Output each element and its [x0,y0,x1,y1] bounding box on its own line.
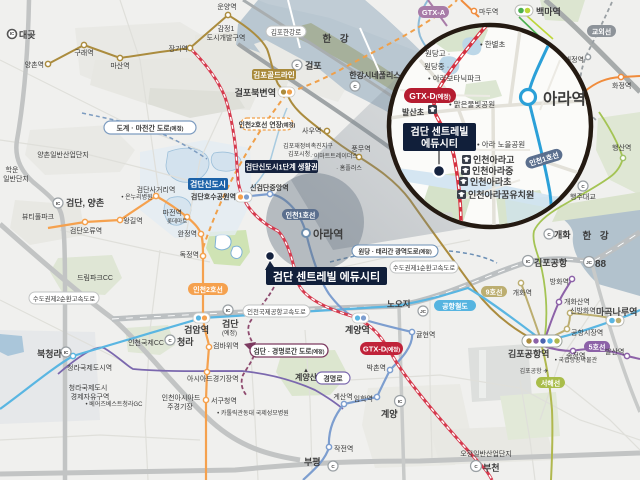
svg-text:IC: IC [526,259,531,264]
svg-text:대곶: 대곶 [19,29,36,40]
svg-text:검단호수공원역: 검단호수공원역 [191,192,236,201]
svg-text:(예정): (예정) [222,329,237,337]
svg-text:• 한별초: • 한별초 [480,39,506,49]
svg-text:발산초: 발산초 [402,107,425,117]
svg-text:아라역: 아라역 [543,90,586,108]
svg-text:• 국립항공박물관: • 국립항공박물관 [555,356,598,364]
svg-text:행주대교: 행주대교 [570,192,596,201]
svg-text:마산역: 마산역 [110,61,129,70]
svg-text:개화: 개화 [554,229,571,240]
svg-text:행산역: 행산역 [612,143,631,152]
svg-text:김포공항: 김포공항 [534,257,568,268]
svg-text:공항철도: 공항철도 [442,302,468,311]
svg-text:걸포: 걸포 [305,60,322,71]
svg-text:IC: IC [398,399,403,404]
svg-text:도시개발구역: 도시개발구역 [207,33,246,42]
svg-text:개화역: 개화역 [513,288,532,297]
svg-text:걸포북변역: 걸포북변역 [235,87,276,98]
svg-text:인천아시아드: 인천아시아드 [162,393,201,402]
svg-text:한 강: 한 강 [322,33,351,45]
svg-text:계양역: 계양역 [345,324,370,335]
svg-text:구래역: 구래역 [74,48,93,57]
svg-text:• 온누리병원: • 온누리병원 [121,193,152,201]
svg-text:서해선: 서해선 [541,379,560,388]
svg-text:IC: IC [56,201,61,206]
svg-text:인천국제CC: 인천국제CC [128,338,164,347]
svg-text:수도권제2순환고속도로: 수도권제2순환고속도로 [33,294,95,303]
svg-text:학운: 학운 [6,165,19,174]
svg-text:IC: IC [10,31,15,36]
svg-text:서구청역: 서구청역 [211,396,237,405]
svg-text:9호선: 9호선 [486,288,503,297]
svg-text:작전역: 작전역 [334,444,353,453]
svg-text:김포재정비촉진지구: 김포재정비촉진지구 [283,142,333,150]
svg-text:• 베어즈베스트청라GC: • 베어즈베스트청라GC [86,400,144,408]
svg-text:검단 센트레빌: 검단 센트레빌 [411,125,469,138]
svg-text:IC: IC [64,350,69,355]
svg-text:검바위역: 검바위역 [213,341,239,350]
svg-text:원당고 ·: 원당고 · [425,48,450,58]
svg-text:검단오류역: 검단오류역 [70,226,102,235]
svg-text:검단: 검단 [222,318,239,329]
svg-text:롯데마트: 롯데마트 [167,217,187,225]
svg-text:수도권제1순환고속도로: 수도권제1순환고속도로 [393,263,455,272]
svg-text:한강시네폴리스: 한강시네폴리스 [349,70,401,80]
svg-text:· 이마트트레이더스: · 이마트트레이더스 [310,152,358,160]
svg-text:발산역: 발산역 [605,347,624,356]
svg-text:마곡나루역: 마곡나루역 [596,306,637,317]
svg-text:운양역: 운양역 [217,2,236,11]
svg-text:아시아드경기장역: 아시아드경기장역 [187,374,239,383]
svg-text:드림파크CC: 드림파크CC [77,273,113,282]
svg-text:GTX-A: GTX-A [422,8,446,17]
svg-text:오정일반산업단지: 오정일반산업단지 [460,449,512,458]
svg-text:▲: ▲ [303,368,309,374]
svg-text:양촌역: 양촌역 [25,60,44,69]
svg-text:아라역: 아라역 [313,227,343,241]
svg-text:박촌역: 박촌역 [367,363,386,372]
svg-text:• 아라보타닉파크: • 아라보타닉파크 [428,73,481,83]
svg-text:뷰티풀파크: 뷰티풀파크 [22,212,55,221]
svg-text:검단, 양촌: 검단, 양촌 [66,197,104,208]
svg-text:마두역: 마두역 [479,7,498,16]
svg-text:주경기장: 주경기장 [167,402,193,411]
svg-text:청라국제도시역: 청라국제도시역 [67,363,112,372]
svg-text:검단사거리역: 검단사거리역 [137,185,176,194]
svg-text:방화역: 방화역 [550,277,569,286]
svg-text:• 맑은물빛공원: • 맑은물빛공원 [449,99,495,109]
svg-text:· 홈플러스: · 홈플러스 [336,164,362,172]
svg-text:신검단중앙역: 신검단중앙역 [250,183,289,192]
svg-text:풍무역: 풍무역 [351,144,370,153]
svg-text:원당중 ·: 원당중 · [424,61,449,71]
svg-text:IC: IC [226,308,231,313]
svg-text:김포공항 ✈: 김포공항 ✈ [520,367,549,375]
svg-text:경명로: 경명로 [323,374,343,383]
svg-text:계산역: 계산역 [333,392,352,401]
svg-text:양촌일반산업단지: 양촌일반산업단지 [37,150,89,159]
svg-text:88: 88 [595,259,607,270]
svg-text:한 강: 한 강 [582,230,611,242]
svg-text:공항시장역: 공항시장역 [571,328,603,337]
svg-text:부평: 부평 [304,456,321,467]
svg-text:완정역: 완정역 [178,229,197,238]
svg-text:독정역: 독정역 [180,250,199,259]
svg-text:경제자유구역: 경제자유구역 [71,392,110,401]
svg-text:5호선: 5호선 [589,343,606,352]
svg-text:화정역: 화정역 [612,81,631,90]
svg-text:마전역: 마전역 [163,208,182,217]
svg-text:신방화역: 신방화역 [570,306,596,315]
svg-text:인천아라고: 인천아라고 [473,154,514,165]
svg-text:장기역: 장기역 [169,44,188,53]
svg-text:사우역: 사우역 [302,126,321,135]
svg-text:교외선: 교외선 [592,27,611,36]
svg-text:김포한강로: 김포한강로 [271,28,301,37]
svg-text:인천1호선: 인천1호선 [286,211,316,220]
svg-text:• 카톨릭관동대 국제성모병원: • 카톨릭관동대 국제성모병원 [217,409,289,417]
svg-text:김포골드라인: 김포골드라인 [253,70,294,80]
svg-text:계양: 계양 [381,408,398,419]
svg-text:검단 센트레빌 에듀시티: 검단 센트레빌 에듀시티 [273,270,380,284]
svg-text:검단신도시1단계 생활권: 검단신도시1단계 생활권 [245,163,318,172]
svg-text:감정1: 감정1 [218,24,235,33]
svg-text:노오지: 노오지 [387,299,410,309]
svg-text:• 아라 노을공원: • 아라 노을공원 [477,139,525,149]
svg-text:인천아라꿈유치원: 인천아라꿈유치원 [468,189,534,200]
svg-text:청라: 청라 [177,336,194,347]
svg-text:청라국제도시: 청라국제도시 [69,383,108,392]
svg-text:인천2호선: 인천2호선 [193,285,223,294]
svg-text:임학역: 임학역 [354,394,373,403]
svg-text:왕길역: 왕길역 [123,216,142,225]
svg-text:백마역: 백마역 [536,6,561,17]
svg-text:인천국제공항고속도로: 인천국제공항고속도로 [247,307,306,316]
svg-text:김포공항역: 김포공항역 [508,348,549,359]
svg-text:귤현역: 귤현역 [416,330,435,339]
svg-text:일반단지: 일반단지 [3,174,29,183]
svg-text:개화산역: 개화산역 [564,297,590,306]
svg-text:인천아라초: 인천아라초 [470,176,512,187]
svg-text:에듀시티: 에듀시티 [421,137,458,150]
svg-text:JC: JC [420,309,427,314]
svg-text:검단신도시: 검단신도시 [190,179,226,189]
svg-text:검암역: 검암역 [184,324,209,335]
svg-text:인천아라중: 인천아라중 [472,165,513,176]
svg-text:JC: JC [586,260,593,265]
svg-text:북청라: 북청라 [37,348,63,359]
svg-text:부천: 부천 [483,463,500,473]
